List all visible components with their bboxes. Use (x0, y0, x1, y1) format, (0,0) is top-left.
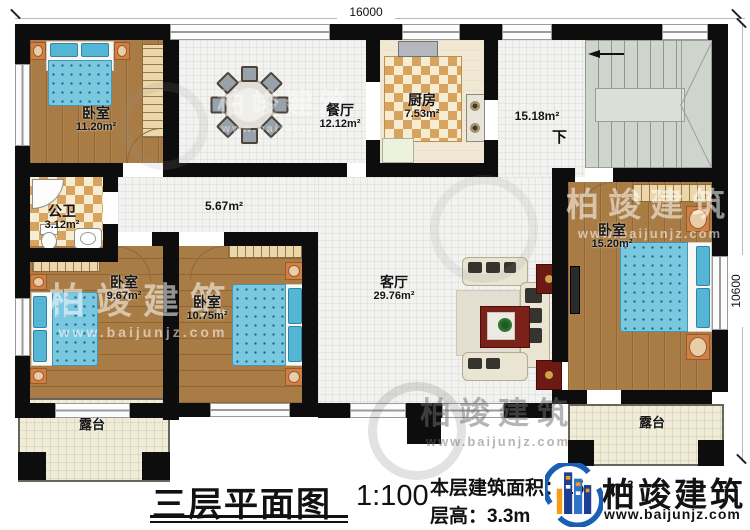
window (712, 256, 728, 330)
room-area: 15.20m² (592, 238, 633, 251)
wall (330, 24, 402, 40)
sofa-cushion (486, 358, 500, 369)
dimension-line-right (742, 24, 743, 462)
wall (712, 24, 728, 256)
room-label-corridor: 5.67m² (205, 200, 243, 214)
dining-chair (273, 97, 289, 114)
bed-quilt (48, 60, 112, 106)
dimension-height-label: 10600 (729, 255, 743, 327)
room-label-bedroom-right: 卧室 15.20m² (592, 222, 633, 251)
window (502, 24, 552, 40)
room-label-kitchen: 厨房 7.53m² (405, 92, 440, 121)
bed-pillow (288, 326, 302, 362)
stair-down-label: 下 (552, 126, 567, 147)
wall (302, 232, 318, 415)
room-label-bedroom-top-left: 卧室 11.20m² (76, 105, 116, 134)
room-area: 3.12m² (45, 219, 80, 232)
window (15, 64, 30, 146)
window (55, 403, 130, 418)
terrace-column (698, 440, 724, 466)
nightstand (30, 42, 46, 60)
room-name: 露台 (79, 418, 105, 433)
wall (224, 232, 302, 246)
wall (130, 403, 179, 418)
wall (15, 163, 123, 177)
dining-table-set (223, 79, 271, 127)
window (662, 24, 708, 40)
brand-logo-icon (545, 463, 603, 527)
watermark-swoosh-icon (430, 175, 538, 283)
wall (504, 403, 552, 418)
watermark-swoosh-icon (120, 82, 208, 170)
stair-landing (595, 88, 685, 122)
wall (15, 24, 170, 40)
room-area: 5.67m² (205, 200, 243, 214)
sofa-cushion (468, 358, 482, 369)
dining-chair (211, 97, 227, 114)
wall (621, 390, 712, 404)
bed-quilt (232, 284, 286, 366)
room-area: 9.67m² (107, 290, 142, 303)
room-label-hall: 15.18m² (515, 110, 560, 124)
dining-chair (241, 128, 258, 144)
window (210, 403, 290, 417)
title-underline (150, 521, 348, 523)
window (170, 24, 330, 40)
bed-quilt (52, 292, 98, 366)
wall (460, 24, 502, 40)
bed-pillow (33, 330, 47, 362)
room-name: 露台 (639, 416, 665, 431)
side-cabinet (536, 360, 562, 390)
bed-pillow (50, 43, 78, 57)
plan-title: 三层平面图 (152, 477, 332, 526)
wall (318, 403, 350, 418)
stove-burner (470, 123, 480, 133)
stair-treads-lower (585, 120, 681, 168)
bed-pillow (696, 288, 710, 328)
wall (484, 40, 498, 100)
plan-scale: 1:100 (356, 480, 429, 513)
room-area: 10.75m² (187, 310, 228, 323)
room-label-living: 客厅 29.76m² (374, 274, 415, 303)
kitchen-stove (466, 94, 485, 142)
room-area: 15.18m² (515, 110, 560, 124)
wall (552, 168, 575, 182)
window (402, 24, 460, 40)
wall (179, 163, 347, 177)
room-area: 12.12m² (320, 118, 361, 131)
room-label-bathroom: 公卫 3.12m² (45, 203, 80, 232)
room-name: 卧室 (592, 222, 633, 238)
wall (179, 403, 210, 417)
room-label-terrace-right: 露台 (639, 416, 665, 431)
bed-pillow (696, 246, 710, 286)
stair-treads-upper (585, 40, 681, 88)
wall (484, 140, 498, 177)
wall (290, 403, 318, 417)
wall (15, 24, 30, 64)
kitchen-cabinet (382, 138, 414, 163)
bed-pillow (288, 288, 302, 324)
terrace-column (18, 452, 46, 480)
wall (552, 182, 568, 362)
room-label-bedroom-bottom-left: 卧室 9.67m² (107, 274, 142, 303)
brand-url: www.baijunjz.com (604, 506, 741, 522)
room-area: 29.76m² (374, 290, 415, 303)
bathroom-sink-bowl (80, 232, 96, 245)
nightstand (686, 334, 710, 360)
room-name: 卧室 (76, 105, 116, 121)
bed-quilt (620, 242, 688, 332)
terrace-column (142, 452, 170, 480)
stair-winder-line (681, 40, 713, 104)
bed-pillow (33, 296, 47, 328)
wall (15, 403, 55, 418)
stair-arrow-tail (600, 53, 624, 55)
nightstand (686, 206, 710, 232)
tv-icon (570, 266, 580, 314)
room-name: 公卫 (45, 203, 80, 219)
room-name: 卧室 (187, 294, 228, 310)
nightstand (30, 368, 47, 384)
wall (552, 390, 587, 404)
wall (712, 330, 728, 392)
staircase (585, 40, 712, 168)
wardrobe-closet (632, 184, 712, 202)
room-area: 11.20m² (76, 121, 116, 134)
nightstand (285, 368, 303, 386)
dining-chair (241, 66, 258, 82)
wall (103, 177, 118, 192)
floor-height-text: 层高：3.3m (430, 501, 530, 528)
room-label-dining: 餐厅 12.12m² (320, 102, 361, 131)
wall (103, 224, 118, 262)
room-name: 厨房 (405, 92, 440, 108)
stove-burner (470, 101, 480, 111)
dimension-width-label: 16000 (337, 5, 395, 19)
wall (613, 168, 712, 182)
kitchen-sink (398, 41, 438, 57)
wall (163, 232, 179, 420)
room-area: 7.53m² (405, 108, 440, 121)
room-name: 卧室 (107, 274, 142, 290)
wall (552, 24, 662, 40)
wall (366, 40, 380, 82)
title-underline (150, 515, 348, 518)
watermark-swoosh-icon (368, 382, 466, 480)
floor-plan-canvas: 下 (0, 0, 750, 530)
room-name: 餐厅 (320, 102, 361, 118)
bed-pillow (81, 43, 109, 57)
nightstand (114, 42, 130, 60)
room-label-bedroom-bottom-mid: 卧室 10.75m² (187, 294, 228, 323)
nightstand (30, 274, 47, 290)
stair-winder-line (680, 104, 712, 168)
stair-direction-arrow-icon (588, 50, 600, 58)
plant-icon (498, 318, 512, 332)
room-name: 客厅 (374, 274, 415, 290)
nightstand (285, 262, 303, 280)
wall (366, 140, 380, 177)
window (15, 298, 30, 356)
room-label-terrace-left: 露台 (79, 418, 105, 433)
